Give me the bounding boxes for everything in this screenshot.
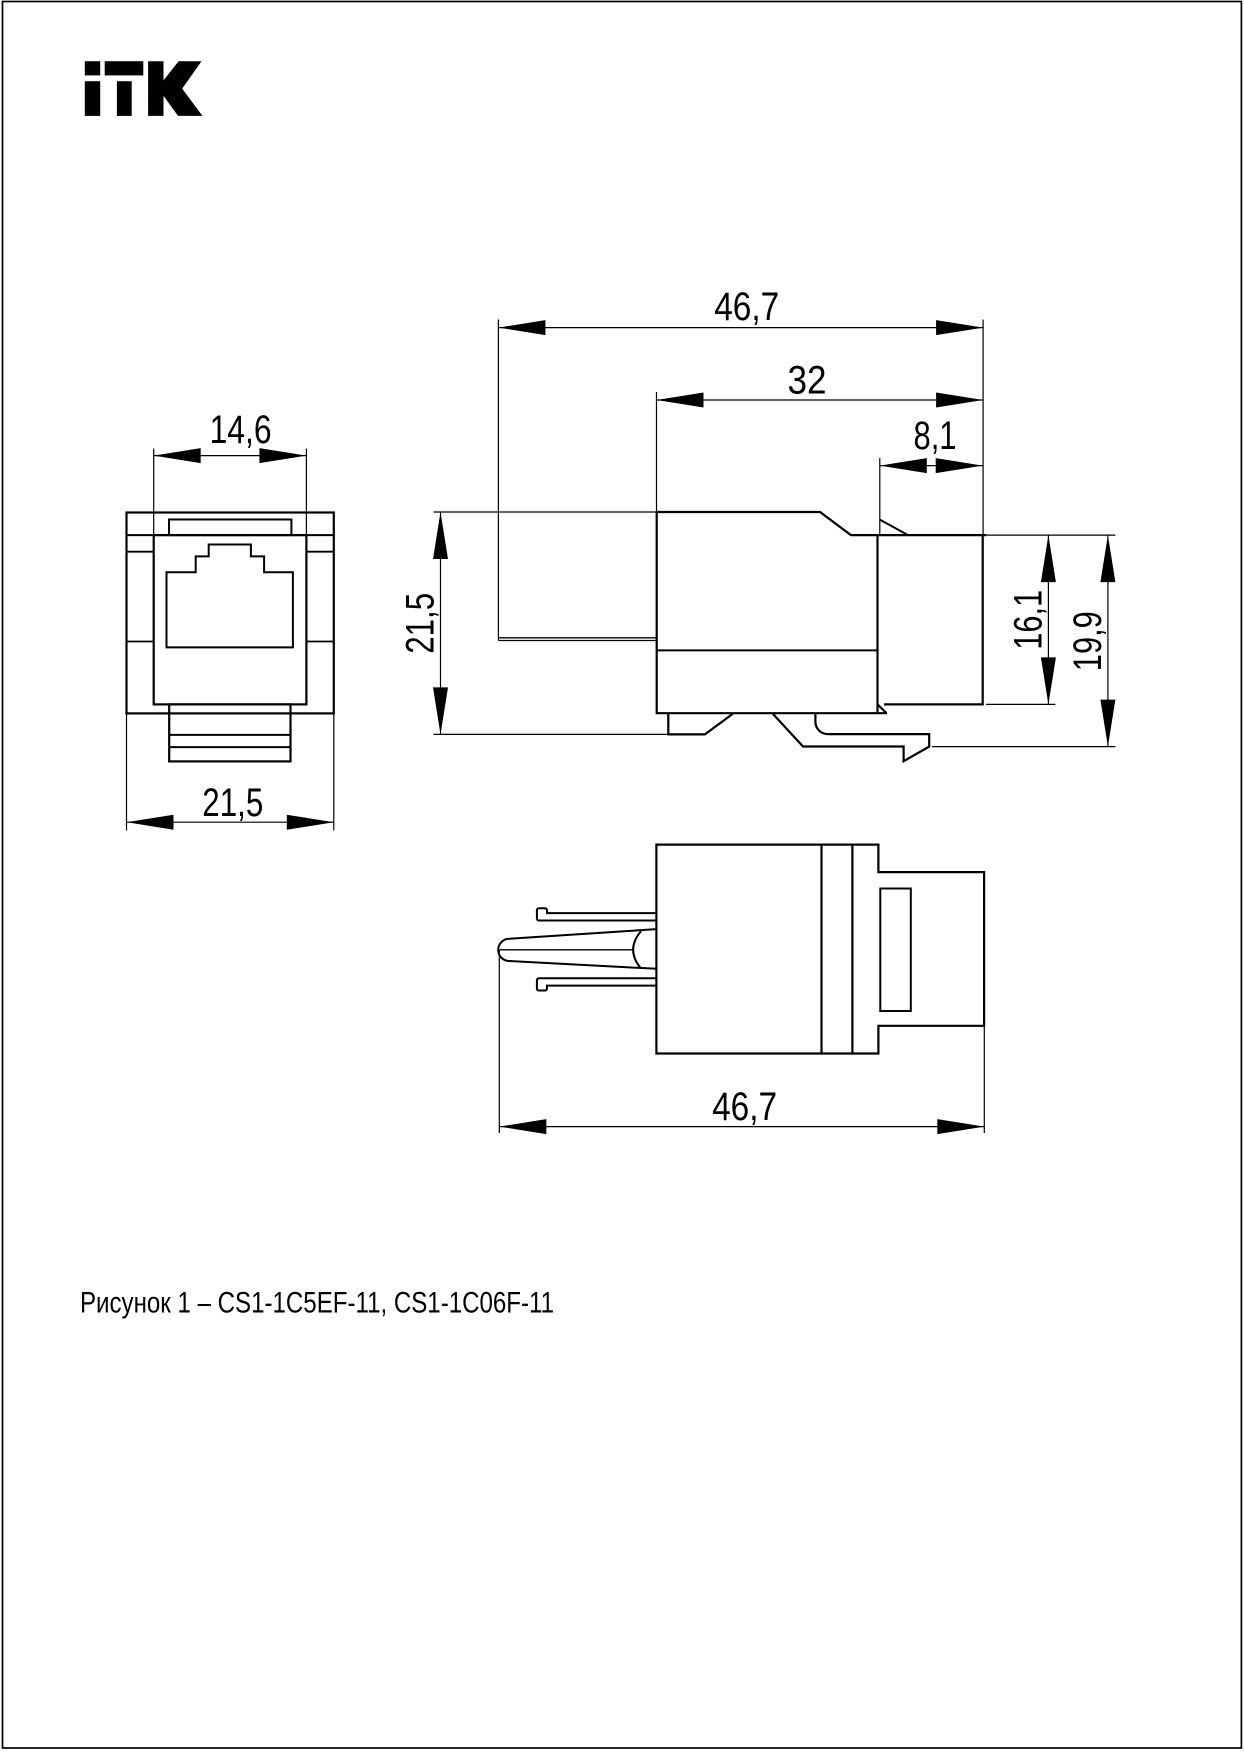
svg-text:Рисунок 1 – CS1-1C5EF-11, CS1-: Рисунок 1 – CS1-1C5EF-11, CS1-1C06F-11: [80, 1287, 554, 1320]
svg-text:21,5: 21,5: [202, 781, 263, 825]
svg-text:16,1: 16,1: [1007, 590, 1051, 650]
svg-text:14,6: 14,6: [210, 408, 272, 452]
svg-text:32: 32: [788, 359, 827, 403]
svg-text:19,9: 19,9: [1066, 611, 1110, 671]
svg-text:46,7: 46,7: [714, 285, 779, 329]
svg-text:46,7: 46,7: [712, 1085, 777, 1129]
svg-text:8,1: 8,1: [914, 414, 957, 458]
svg-text:21,5: 21,5: [399, 593, 443, 654]
